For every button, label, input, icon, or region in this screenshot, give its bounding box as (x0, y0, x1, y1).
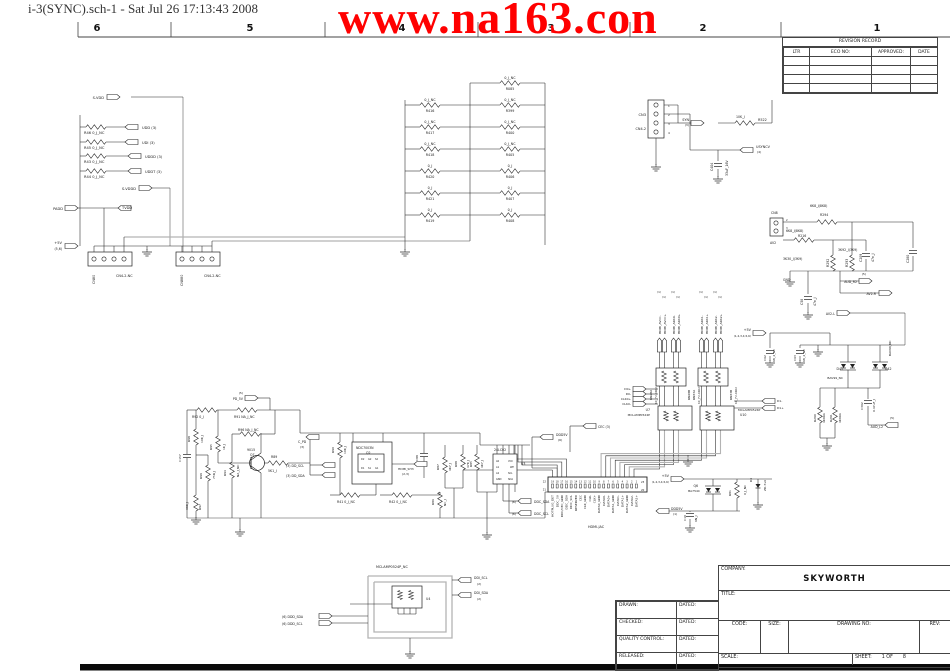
schematic-label: DDI_SCL (474, 576, 488, 580)
schematic-label: UDD (3) (142, 126, 157, 130)
schematic-label: 9015 (247, 448, 255, 452)
schematic-label: R399 (506, 109, 515, 113)
net-flag (662, 338, 666, 352)
schematic-label: DATA2- (630, 495, 634, 506)
resistor (392, 493, 412, 498)
schematic-label: 20 (641, 488, 645, 492)
schematic-label: D0- (626, 392, 631, 396)
schematic-label: DDC_SDA (565, 494, 569, 509)
schematic-label: DDD5V (556, 433, 568, 437)
resistor (500, 147, 520, 152)
net-flag (633, 402, 646, 407)
schematic-label: 68_2_NC (802, 349, 806, 362)
schematic-label: D4 (749, 478, 753, 482)
net-flag (753, 331, 766, 336)
schematic-label: R405 (506, 153, 515, 157)
schematic-label: 6N_J (694, 515, 698, 522)
schematic-label: VCC (508, 460, 513, 463)
schematic-label: R44 0_J_NC (84, 175, 105, 179)
schematic-label: (5,6) (54, 247, 62, 251)
schematic-label: 13 (579, 481, 583, 484)
company-name: SKYWORTH (719, 574, 950, 584)
schematic-label: HDMI_AVCC+ (663, 313, 667, 334)
schematic-label: HDMI_ARX2+ (719, 313, 723, 334)
size-label: SIZE: (761, 622, 788, 627)
net-flag (65, 206, 78, 211)
net-flag (837, 311, 850, 316)
schematic-label: (1) (671, 290, 675, 294)
schematic-label: (2) (477, 597, 481, 601)
rev-col-date: DATE (911, 48, 938, 57)
connector-pin (654, 130, 658, 134)
connector-pin (774, 229, 778, 233)
schematic-label: UDDT (3) (145, 170, 162, 174)
schematic-label: 10_J*2-0402 (654, 387, 658, 404)
schematic-label: SYN (682, 118, 689, 122)
rev-empty-cell (911, 66, 938, 75)
resistor (794, 238, 814, 243)
schematic-label: R87 (436, 464, 440, 470)
schematic-label: DATA0+ (607, 495, 611, 508)
resistor (420, 213, 440, 218)
schematic-label: 68_2_NC (772, 349, 776, 362)
schematic-label: NDC7003N (356, 446, 374, 450)
hdmi-pin (635, 484, 637, 488)
rev-empty-cell (784, 57, 810, 66)
net-flag (671, 477, 684, 482)
resistor (240, 432, 260, 437)
resistor (420, 103, 440, 108)
net-flag (762, 399, 775, 404)
hdmi-pin (561, 484, 563, 488)
net-flag (518, 511, 531, 516)
net-flag (671, 338, 675, 352)
schematic-label: 12 (584, 481, 588, 484)
hdmi-pin (584, 484, 586, 488)
schematic-label: CN3 (639, 113, 646, 117)
schematic-label: NC_J (443, 499, 447, 506)
schematic-label: R294 (820, 213, 828, 217)
connector-pin (92, 257, 96, 261)
schematic-label: (3) DD_SCL (286, 464, 304, 468)
net-flag (540, 435, 553, 440)
net-flag (319, 621, 332, 626)
resistor (230, 462, 235, 478)
net-flag (245, 396, 258, 401)
rev-col-ltr: LTR (784, 48, 810, 57)
schematic-label: S-VDD (93, 96, 105, 100)
diode (706, 488, 711, 492)
schematic-label: (1) (657, 290, 661, 294)
schematic-label: 0_J_NC (424, 142, 436, 146)
schematic-label: 4K99A (838, 412, 842, 423)
rev-empty-cell (872, 75, 911, 84)
schematic-label: RN28A (649, 389, 653, 400)
net-flag (322, 473, 335, 478)
schematic-label: DDD5V (671, 507, 683, 511)
resistor (420, 125, 440, 130)
connector-pin (200, 257, 204, 261)
hdmi-pin (631, 484, 633, 488)
rev-empty-cell (810, 66, 872, 75)
resistor (831, 255, 836, 271)
net-flag (713, 338, 717, 352)
schematic-label: HDMI_ARX0- (672, 315, 676, 334)
diode (715, 488, 720, 492)
schematic-label: R407 (506, 197, 515, 201)
title-label: TITLE: (721, 592, 736, 597)
net-flag (414, 462, 427, 467)
resistor (420, 169, 440, 174)
resistor (500, 191, 520, 196)
schematic-label: D42 (885, 367, 892, 371)
schematic-label: 16 (565, 481, 569, 484)
connector-pin (654, 103, 658, 107)
schematic-label: R418 (426, 153, 435, 157)
schematic-label: C209 (859, 254, 863, 262)
schematic-label: 3K30_J(3K9) (783, 257, 802, 261)
schematic-label: S-VDDD (122, 187, 136, 191)
schematic-label: R97 (198, 504, 202, 510)
column-number: 6 (94, 23, 101, 34)
schematic-label: (4) (757, 150, 761, 154)
revision-record-title: REVISION RECORD (783, 38, 937, 47)
schematic-label: CLK+ (593, 495, 597, 504)
resistor (735, 121, 755, 126)
schematic-label: R291 (829, 414, 833, 422)
schematic-label: PADD (53, 207, 63, 211)
schematic-label: 15 (570, 481, 574, 484)
resistor (735, 482, 740, 498)
sheet-value: 1 OF (882, 655, 893, 665)
schematic-label: CN880 (180, 275, 184, 286)
schematic-label: 21 (543, 488, 547, 492)
schematic-label: R292 (826, 259, 830, 267)
resistor (500, 81, 520, 86)
connector-pin (774, 221, 778, 225)
hdmi-pin (570, 484, 572, 488)
approval-role-label: DRAWN: (617, 602, 677, 619)
schematic-label: 24LC02 (494, 448, 506, 452)
schematic-label: U3 (521, 462, 525, 466)
net-flag (306, 435, 319, 440)
schematic-label: MCLAMP0524P_NC (376, 565, 408, 569)
schematic-label: R419 (426, 219, 435, 223)
schematic-label: HDMI_ARX1+ (705, 313, 709, 334)
schematic-label: 6K8_J(8K8) (786, 229, 803, 233)
net-flag (762, 406, 775, 411)
schematic-label: DATA0_GND (597, 494, 601, 513)
net-flag (128, 154, 141, 159)
schematic-label: 17 (560, 481, 564, 484)
schematic-label: R45 0_J_NC (84, 146, 105, 150)
resistor (500, 103, 520, 108)
schematic-label: C302 (860, 402, 864, 410)
hdmi-pin (565, 484, 567, 488)
net-flag (704, 338, 708, 352)
schematic-label: 47n_J (813, 297, 817, 306)
rev-empty-cell (911, 75, 938, 84)
schematic-label: R81 (728, 490, 732, 496)
sheet-label: SHEET: (855, 655, 872, 665)
schematic-label: C62 (763, 355, 767, 361)
component-box (698, 368, 728, 386)
schematic-label: +5V (54, 241, 62, 245)
schematic-label: R99 (199, 473, 203, 479)
revision-record-grid: LTR ECO NO: APPROVED: DATE (783, 47, 938, 93)
net-flag (676, 338, 680, 352)
schematic-label: 0_J (508, 186, 513, 190)
net-flag (657, 338, 661, 352)
connector-pin (102, 257, 106, 261)
schematic-label: C_PD (298, 440, 307, 444)
approval-role-label: CHECKED: (617, 619, 677, 636)
hdmi-pin (607, 484, 609, 488)
transistor (251, 466, 261, 473)
schematic-label: (1) (676, 295, 680, 299)
rev-empty-cell (810, 57, 872, 66)
resistor (86, 169, 106, 174)
schematic-label: 19 (551, 481, 555, 484)
schematic-label: U4 (426, 597, 430, 601)
resistor (500, 213, 520, 218)
schematic-label: 39K_J (185, 502, 189, 510)
net-flag (699, 338, 703, 352)
schematic-label: (1,2,3,4,5,6) (734, 334, 751, 338)
schematic-label: A1 (496, 466, 500, 469)
schematic-label: GND (496, 478, 502, 481)
schematic-label: AUD_L2 (871, 425, 883, 429)
schematic-label: (6) DDD_SCL (282, 622, 303, 626)
company-label: COMPANY: (721, 567, 746, 572)
schematic-label: (6) (512, 512, 516, 516)
drawing-no-label: DRAWING NO: (789, 622, 919, 627)
schematic-label: Q2 (366, 451, 371, 455)
resistor (194, 429, 199, 445)
rev-empty-cell (784, 75, 810, 84)
schematic-label: C88 (415, 455, 419, 461)
wire (522, 445, 557, 477)
schematic-label: 2 (786, 218, 788, 222)
schematic-label: CN8 (771, 211, 778, 215)
schematic-label: 0_J_NC (424, 98, 436, 102)
schematic-label: HDMI_ARX0+ (677, 313, 681, 334)
schematic-label: 3 (668, 122, 670, 126)
schematic-label: R41 0_J_NC (337, 500, 356, 504)
schematic-label: (1) (704, 295, 708, 299)
schematic-label: S2 (375, 458, 379, 461)
wire (518, 445, 562, 477)
schematic-label: R408 (506, 219, 515, 223)
schematic-label: DDC_5V (555, 494, 559, 507)
diode (873, 364, 878, 368)
schematic-label: 0_J_NC (504, 120, 516, 124)
net-flag (583, 424, 596, 429)
approval-table: DRAWN:DATED:CHECKED:DATED:QUALITY CONTRO… (615, 600, 719, 671)
schematic-label: 1 (668, 104, 670, 108)
resistor (500, 169, 520, 174)
schematic-label: R86 (431, 499, 435, 505)
schematic-label: R420 (426, 175, 435, 179)
schematic-label: CLK0- (622, 402, 631, 406)
net-flag (656, 509, 669, 514)
approval-dated-label: DATED: (677, 602, 719, 619)
approval-role-label: QUALITY CONTROL: (617, 636, 677, 653)
schematic-label: +5V (662, 474, 670, 478)
schematic-label: HDMI_SH3 (398, 467, 414, 471)
schematic-label: 2 (668, 113, 670, 117)
resistor (86, 154, 106, 159)
schematic-label: (5) (862, 272, 866, 276)
schematic-label: HDMI_AVCC- (658, 315, 662, 334)
schematic-label: 14 (574, 481, 578, 484)
schematic-label: (1) (718, 295, 722, 299)
resistor (86, 125, 106, 130)
schematic-label: C58 (800, 299, 804, 305)
schematic-label: (1) (699, 290, 703, 294)
resistor (438, 492, 443, 508)
schematic-label: G2 (368, 458, 372, 461)
scale-label: SCALE: (719, 654, 853, 665)
schematic-label: (6) DDD_SDA (282, 615, 304, 619)
schematic-label: WP (510, 466, 514, 469)
schematic-label: 0_J (508, 164, 513, 168)
net-flag (125, 140, 138, 145)
sheet-total: 8 (903, 655, 906, 665)
schematic-label: D0+ (624, 387, 631, 391)
bus-wire (601, 430, 720, 477)
resistor (206, 465, 211, 481)
hdmi-pin (626, 484, 628, 488)
schematic-label: R417 (426, 131, 435, 135)
resistor (850, 255, 855, 271)
schematic-label: Q6 (693, 484, 698, 488)
schematic-label: 22 (543, 480, 547, 484)
net-flag (885, 423, 898, 428)
approval-role-label: RELEASED: (617, 653, 677, 670)
resistor (420, 147, 440, 152)
rev-empty-cell (911, 57, 938, 66)
schematic-label: DATA1+ (621, 495, 625, 508)
connector-pin (654, 121, 658, 125)
rev-label: REV: (920, 622, 950, 627)
schematic-label: AV2-L (826, 312, 835, 316)
schematic-label: ZD-5v6 (763, 480, 767, 491)
schematic-label: 4K7_J (448, 463, 452, 471)
schematic-label: TVDD (121, 206, 132, 210)
net-flag (740, 148, 753, 153)
schematic-label: R98 (187, 436, 191, 442)
title-block: COMPANY: SKYWORTH TITLE: CODE: SIZE: DRA… (718, 565, 950, 668)
net-flag (518, 499, 531, 504)
schematic-label: Q7 (250, 453, 255, 457)
schematic-label: DDC/CEC_GND (560, 494, 564, 517)
connector-pin (654, 112, 658, 116)
column-number: 1 (874, 23, 881, 34)
schematic-label: MCLAMP0524P (628, 413, 651, 417)
schematic-label: R400 (506, 131, 515, 135)
schematic-label: D41 (836, 367, 843, 371)
component-box (392, 586, 422, 608)
net-flag (319, 614, 332, 619)
revision-record-table: REVISION RECORD LTR ECO NO: APPROVED: DA… (782, 37, 938, 94)
schematic-label: DATA2+ (634, 495, 638, 508)
schematic-label: UDI (3) (142, 141, 155, 145)
schematic-label: R293 (845, 259, 849, 267)
schematic-label: UDDD (3) (145, 155, 163, 159)
hdmi-pin (589, 484, 591, 488)
schematic-label: BAV99_NC (827, 376, 843, 380)
schematic-label: R216 (798, 234, 806, 238)
schematic-label: R421 (426, 197, 435, 201)
approval-dated-label: DATED: (677, 653, 719, 670)
net-flag (633, 397, 646, 402)
schematic-label: R92 0_J (192, 415, 204, 419)
net-flag (458, 593, 471, 598)
schematic-label: 4 (668, 131, 670, 135)
schematic-label: 0.47uF_J (872, 399, 876, 412)
schematic-label: CLK0+ (621, 397, 632, 401)
schematic-label: (1) (662, 295, 666, 299)
schematic-label: R96 NA_J_NC (238, 428, 259, 432)
hdmi-pin (575, 484, 577, 488)
schematic-label: D1- (777, 399, 782, 403)
net-flag (322, 463, 335, 468)
schematic-label: 10_J*2-0402 (697, 387, 701, 404)
schematic-label: C63 (793, 355, 797, 361)
schematic-label: R085 (506, 87, 515, 91)
schematic-label: D1 (361, 467, 365, 470)
net-flag (633, 392, 646, 397)
watermark: www.na163.con (338, 0, 658, 44)
hdmi-pin (593, 484, 595, 488)
schematic-label: DDI_SDA (474, 591, 489, 595)
schematic-label: 0_J (428, 186, 433, 190)
rev-empty-cell (810, 84, 872, 93)
hdmi-pin (617, 484, 619, 488)
net-flag (879, 291, 892, 296)
connector-pin (122, 257, 126, 261)
component-box (656, 368, 686, 386)
schematic-sheet: 19HOTPLUG_DET18DDC_5V17DDC/CEC_GND16DDC_… (0, 0, 950, 672)
hdmi-pin (552, 484, 554, 488)
schematic-label: D2 (361, 458, 365, 461)
schematic-label: R91 NA_J_NC (234, 415, 255, 419)
hdmi-pin (556, 484, 558, 488)
schematic-label: AUD_R2 (844, 280, 857, 284)
schematic-label: 23 (641, 480, 645, 484)
schematic-label: NA_J_NC (236, 464, 240, 477)
schematic-label: CN4-2-NC (116, 274, 133, 278)
schematic-label: DATA0- (602, 495, 606, 506)
schematic-label: (2,3) (402, 472, 409, 476)
schematic-label: GND (783, 278, 791, 282)
schematic-label: DDC_SCL (569, 495, 573, 509)
resistor (237, 408, 257, 413)
schematic-label: R43 0_J_NC (84, 160, 105, 164)
diode (850, 364, 855, 368)
schematic-label: 47K_J (466, 460, 470, 468)
diode (756, 484, 761, 488)
connector-pin (180, 257, 184, 261)
net-flag (125, 125, 138, 130)
schematic-label: DATA1- (616, 495, 620, 506)
schematic-label: C404 (710, 163, 714, 171)
rev-empty-cell (872, 57, 911, 66)
schematic-label: 3K92_J(3K9) (838, 248, 857, 252)
schematic-label: HDMI_ARX2- (714, 315, 718, 334)
approval-dated-label: DATED: (677, 619, 719, 636)
